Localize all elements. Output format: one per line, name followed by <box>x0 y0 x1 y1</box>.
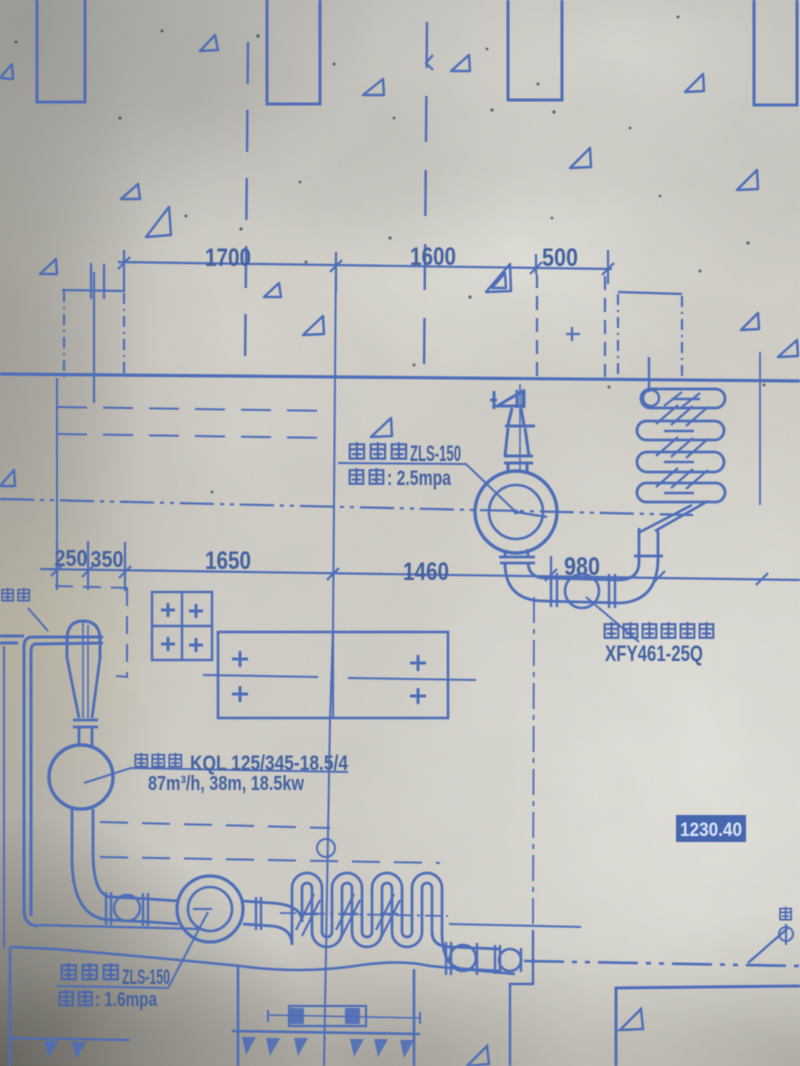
svg-text:1460: 1460 <box>403 558 449 586</box>
svg-text:1600: 1600 <box>410 243 456 271</box>
svg-text:980: 980 <box>564 553 600 581</box>
svg-text:ZLS-150: ZLS-150 <box>410 441 461 466</box>
svg-text:: 2.5mpa: : 2.5mpa <box>387 467 451 490</box>
svg-text:500: 500 <box>542 244 578 272</box>
svg-text:XFY461-25Q: XFY461-25Q <box>605 641 703 666</box>
svg-text:ZLS-150: ZLS-150 <box>122 966 170 989</box>
svg-text:1700: 1700 <box>205 244 251 272</box>
svg-text:1650: 1650 <box>205 547 251 575</box>
svg-text:87m³/h, 38m, 18.5kw: 87m³/h, 38m, 18.5kw <box>148 773 304 795</box>
svg-text:1230.40: 1230.40 <box>680 820 742 841</box>
svg-text:KQL 125/345-18.5/4: KQL 125/345-18.5/4 <box>190 752 348 775</box>
svg-text:: 1.6mpa: : 1.6mpa <box>95 989 158 1011</box>
svg-text:250: 250 <box>55 545 88 571</box>
svg-text:350: 350 <box>91 546 124 572</box>
